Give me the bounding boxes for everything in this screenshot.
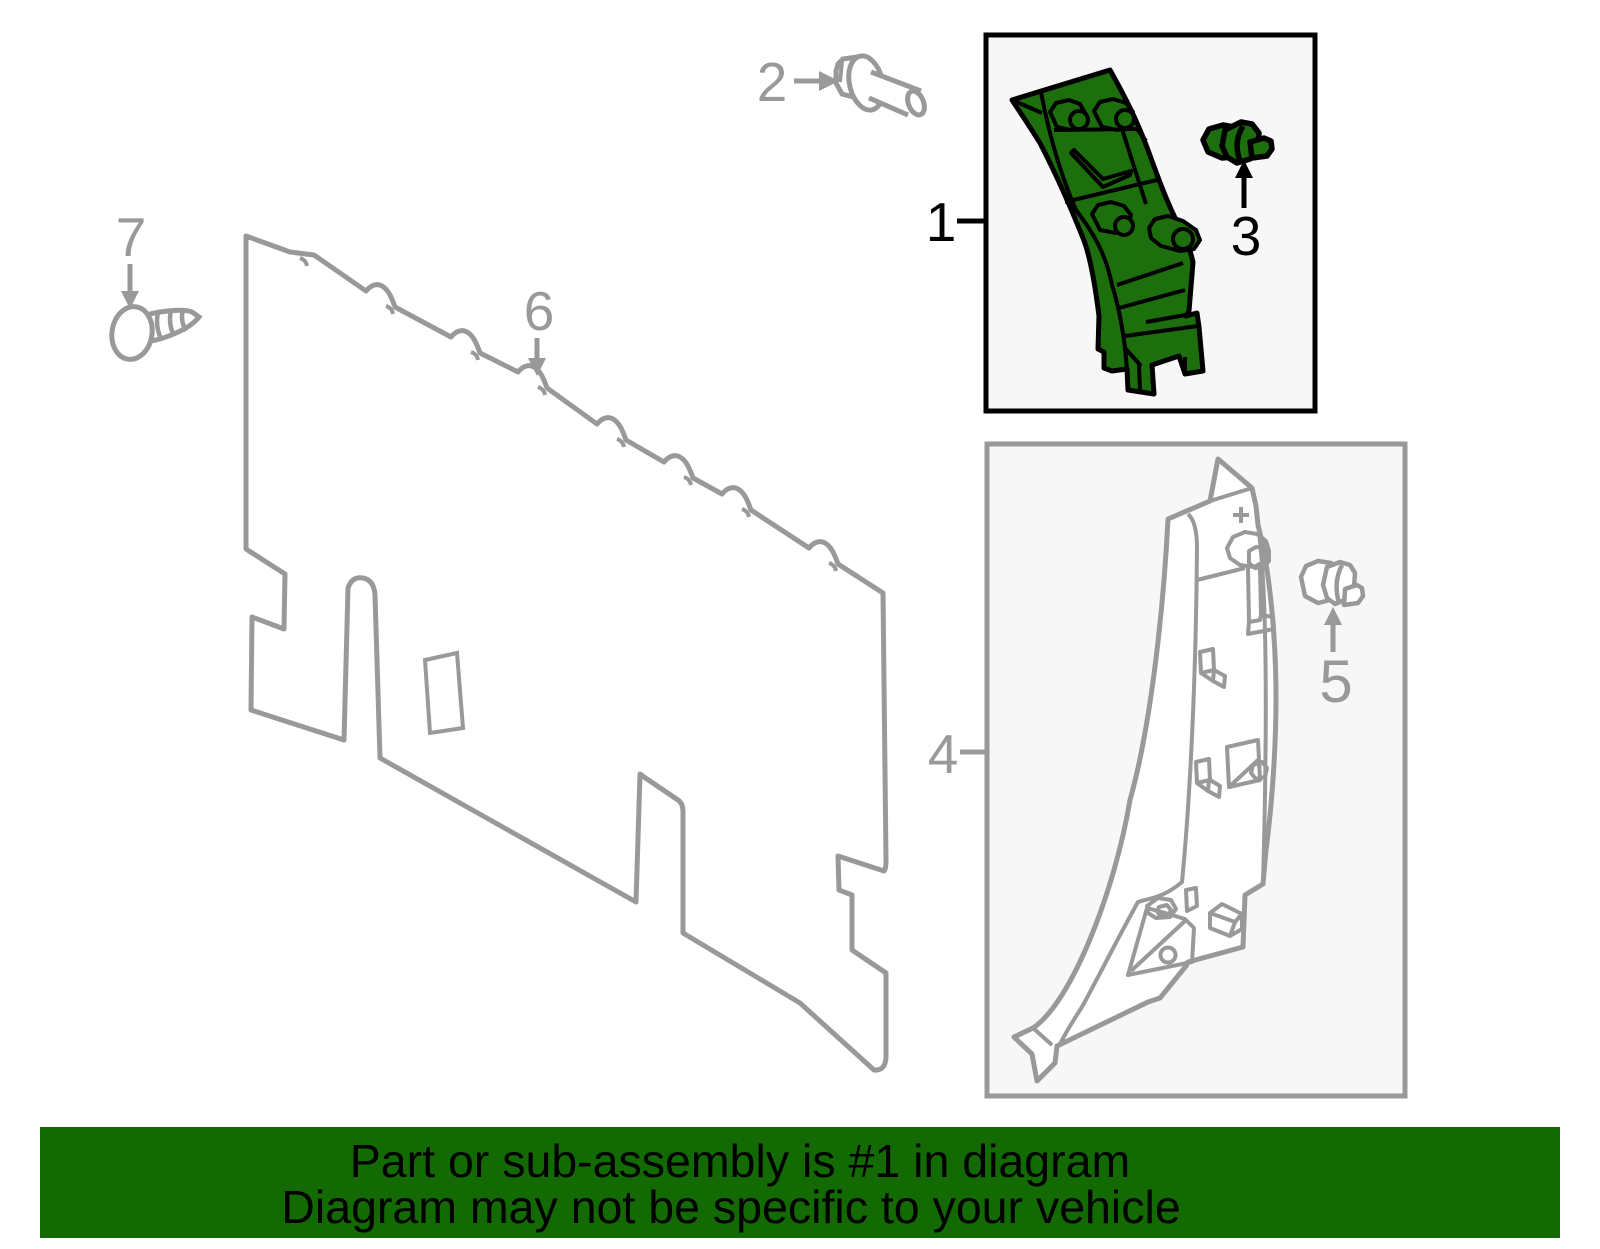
svg-text:2: 2 [757, 51, 788, 113]
svg-text:4: 4 [928, 723, 959, 785]
svg-text:6: 6 [524, 280, 555, 342]
svg-text:3: 3 [1231, 205, 1262, 267]
svg-text:1: 1 [926, 191, 957, 253]
svg-text:5: 5 [1319, 648, 1352, 715]
svg-text:7: 7 [116, 206, 147, 268]
svg-text:Diagram may not be specific to: Diagram may not be specific to your vehi… [281, 1181, 1180, 1233]
svg-text:Part or sub-assembly is #1 in: Part or sub-assembly is #1 in diagram [350, 1135, 1131, 1187]
